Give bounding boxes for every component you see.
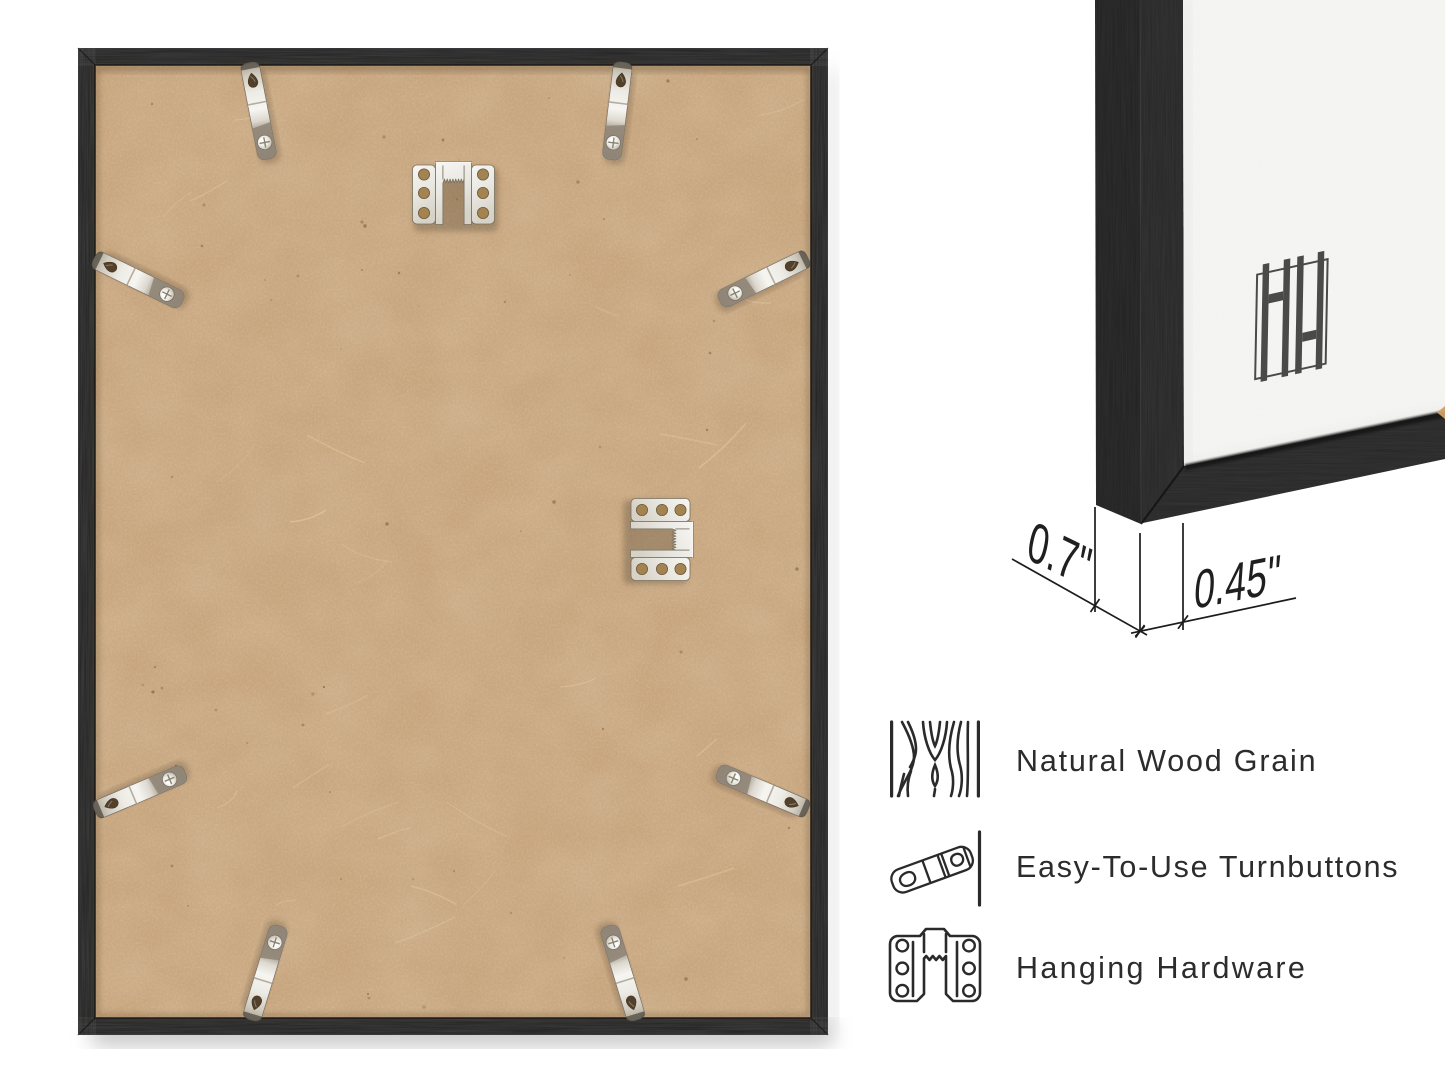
svg-text:Easy-To-Use Turnbuttons: Easy-To-Use Turnbuttons: [1016, 850, 1399, 884]
svg-text:Natural Wood Grain: Natural Wood Grain: [1016, 744, 1317, 778]
svg-text:Hanging Hardware: Hanging Hardware: [1016, 951, 1307, 985]
